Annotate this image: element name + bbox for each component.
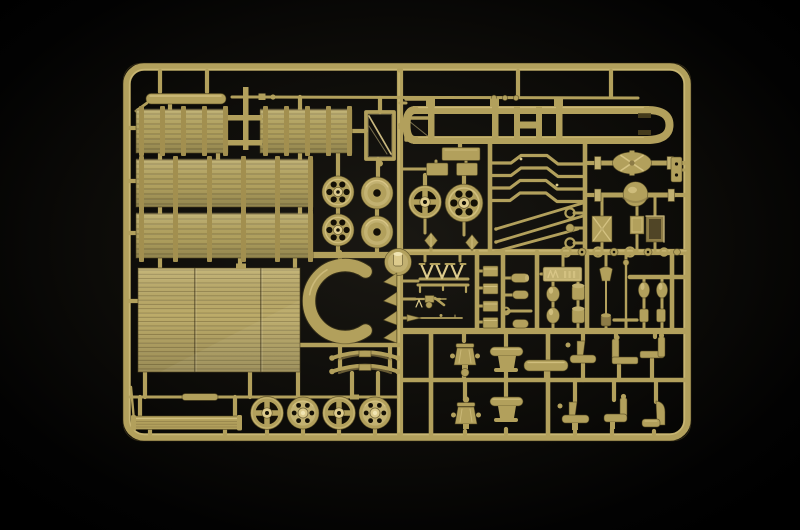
stake-panel-top-left: [136, 106, 228, 156]
label-plate: [543, 267, 582, 282]
storage-box-1: [592, 216, 612, 242]
wheel-spoked-1: [322, 176, 354, 208]
sprue-photo: [0, 0, 800, 530]
wheel-spoked-3: [445, 184, 483, 222]
storage-box-2: [630, 216, 644, 234]
wheel-spoked-2: [322, 214, 354, 246]
wheel-solid-2: [361, 216, 393, 248]
stake-panel-middle: [136, 156, 313, 211]
running-board: [131, 415, 242, 431]
oval-part-2: [656, 282, 667, 298]
storage-box-3: [646, 216, 664, 242]
stake-panel-lower: [136, 210, 313, 262]
wheel-drum-1: [287, 397, 319, 429]
floor-board-part: [524, 360, 568, 371]
helmet-part-1: [547, 286, 560, 302]
cargo-floor-panel: [138, 264, 300, 373]
wheel-spider-2: [251, 397, 284, 430]
canister-1: [572, 283, 585, 300]
wheel-solid-1: [361, 177, 393, 209]
photo-canvas: [0, 0, 800, 530]
hub-disc: [385, 249, 412, 276]
oval-part-1: [638, 282, 649, 298]
small-cylinder-1: [640, 309, 649, 322]
canister-2: [572, 306, 585, 323]
stake-panel-top-right: [260, 106, 352, 156]
helmet-part-2: [547, 308, 560, 324]
wheel-spider-3: [323, 397, 356, 430]
backplate-part: [671, 157, 682, 182]
wheel-spider-1: [409, 186, 442, 219]
wheel-drum-2: [359, 397, 391, 429]
small-cylinder-2: [657, 309, 666, 322]
